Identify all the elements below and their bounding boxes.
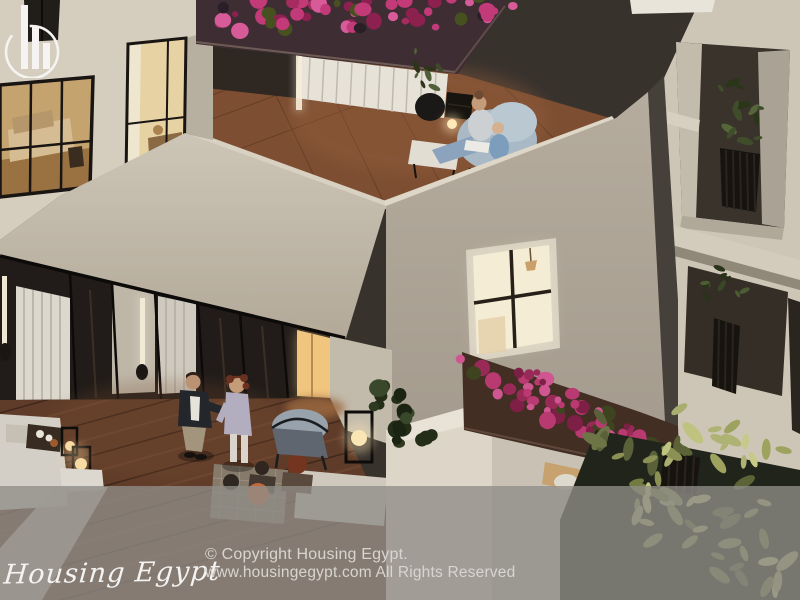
beanbag bbox=[415, 93, 445, 121]
architectural-render-image: Housing Egypt © Copyright Housing Egypt.… bbox=[0, 0, 800, 600]
copyright-text: © Copyright Housing Egypt. www.housingeg… bbox=[205, 546, 515, 582]
brand-wordmark: Housing Egypt bbox=[2, 556, 195, 590]
logo-bar-tall bbox=[21, 5, 28, 69]
lit-window-living bbox=[0, 77, 93, 197]
lit-window bbox=[466, 238, 560, 362]
housing-egypt-logo-icon bbox=[0, 0, 72, 78]
balcony-niche-top bbox=[676, 42, 790, 240]
wall-light-strip bbox=[2, 276, 7, 346]
logo-bar-mid bbox=[32, 26, 39, 69]
seated-person-head bbox=[255, 461, 269, 475]
courtyard-night-render bbox=[0, 0, 800, 600]
coffee-table bbox=[26, 424, 62, 452]
child-head bbox=[492, 122, 504, 134]
seated-woman-hair bbox=[287, 454, 307, 474]
copyright-line2: www.housingegypt.com All Rights Reserved bbox=[205, 564, 515, 582]
woman-torso bbox=[468, 109, 494, 141]
logo-bar-short bbox=[43, 43, 50, 69]
copyright-line1: © Copyright Housing Egypt. bbox=[205, 546, 515, 564]
roof-slab bbox=[630, 0, 715, 14]
